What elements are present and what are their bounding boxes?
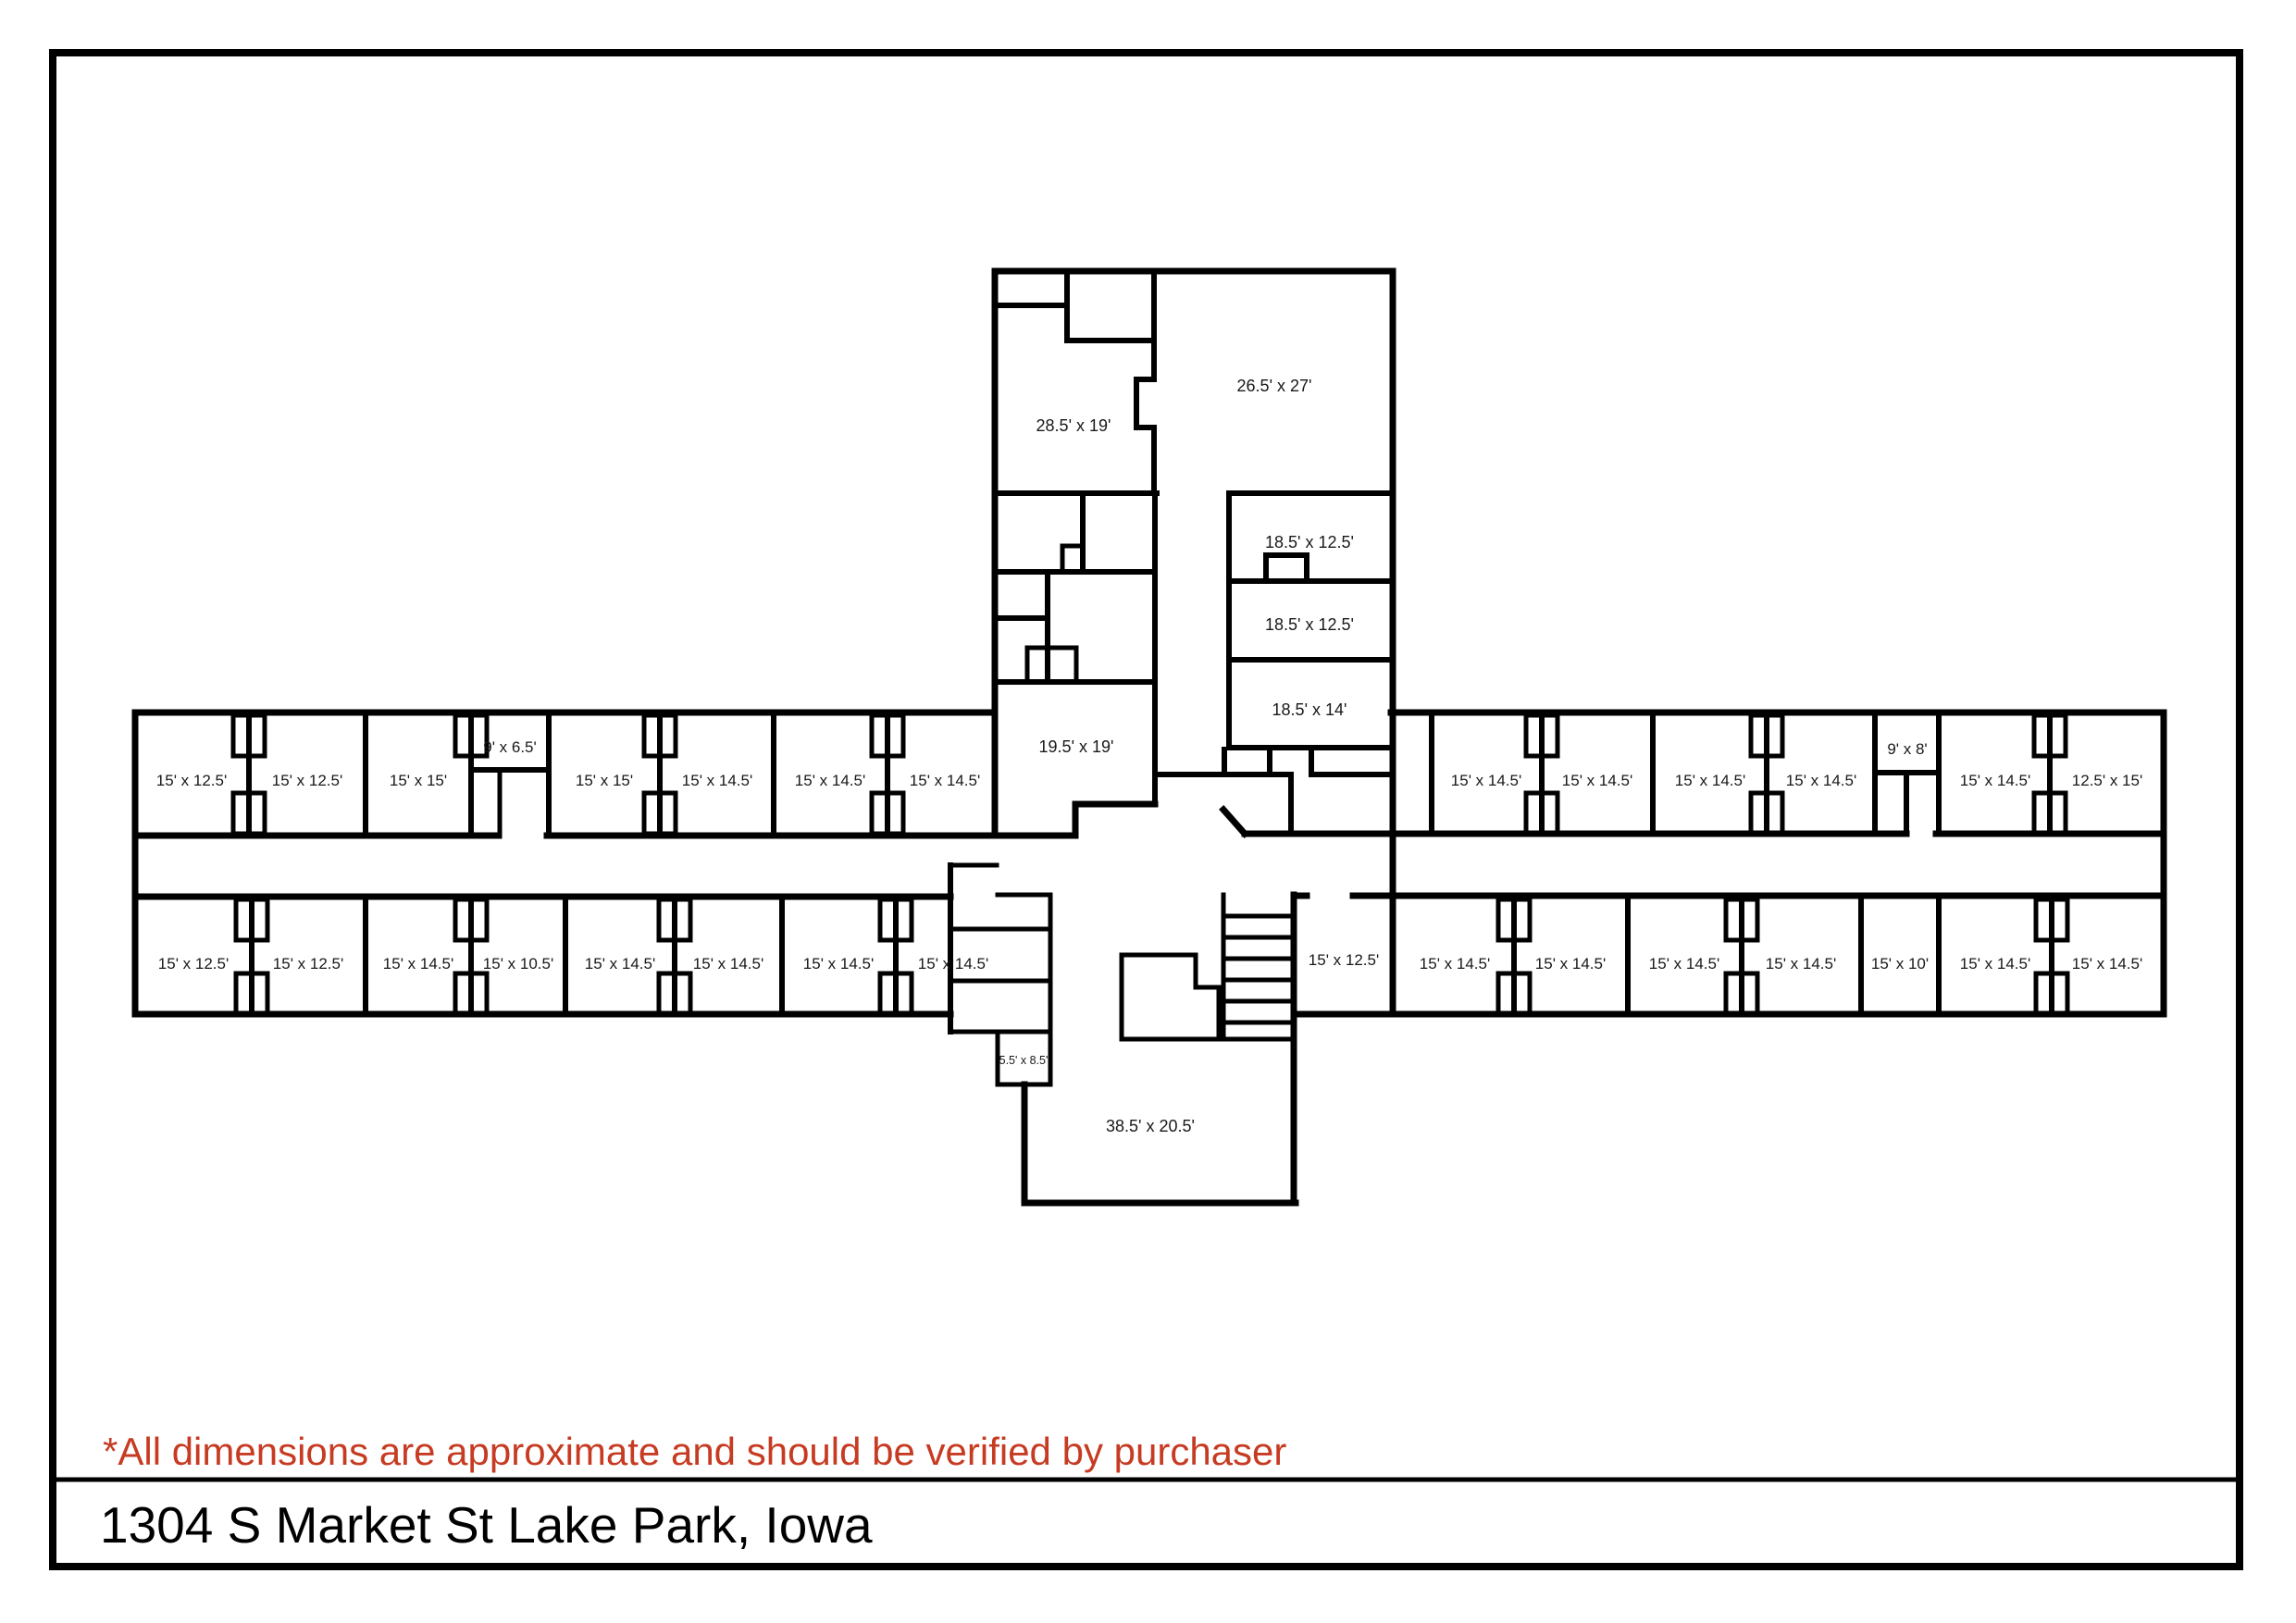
room-dimension-label: 18.5' x 12.5' [1265, 615, 1354, 634]
room-dimension-label: 15' x 10.5' [483, 955, 553, 973]
room-dimension-label: 15' x 12.5' [1309, 951, 1379, 969]
room-dimension-label: 15' x 14.5' [2072, 955, 2142, 973]
interior-walls [249, 271, 2052, 1032]
room-dimension-label: 15' x 12.5' [156, 772, 227, 789]
room-dimension-label: 15' x 12.5' [273, 955, 343, 973]
room-dimension-label: 15' x 15' [390, 772, 447, 789]
room-dimension-label: 15' x 14.5' [1960, 955, 2030, 973]
room-dimension-label: 9' x 8' [1887, 740, 1927, 758]
room-dimension-label: 15' x 14.5' [1766, 955, 1836, 973]
room-dimension-label: 5.5' x 8.5' [999, 1054, 1049, 1067]
room-dimension-label: 15' x 14.5' [803, 955, 874, 973]
floor-plan-svg: 15' x 12.5' 15' x 12.5' 15' x 15' 9' x 6… [0, 0, 2296, 1623]
room-dimension-label: 15' x 10' [1871, 955, 1929, 973]
room-dimension-label: 15' x 14.5' [585, 955, 655, 973]
detail-walls [233, 546, 2067, 1084]
page-border [53, 53, 2240, 1567]
room-dimension-label: 26.5' x 27' [1237, 377, 1312, 395]
room-dimension-label: 28.5' x 19' [1036, 416, 1111, 435]
page-title: 1304 S Market St Lake Park, Iowa [100, 1495, 873, 1555]
room-dimension-label: 12.5' x 15' [2072, 772, 2142, 789]
room-dimension-label: 15' x 14.5' [1420, 955, 1490, 973]
floor-plan-page: 15' x 12.5' 15' x 12.5' 15' x 15' 9' x 6… [0, 0, 2296, 1623]
room-dimension-label: 19.5' x 19' [1039, 737, 1114, 756]
room-dimension-label: 15' x 14.5' [1960, 772, 2030, 789]
room-dimension-label: 15' x 14.5' [693, 955, 763, 973]
room-dimension-label: 9' x 6.5' [483, 738, 537, 756]
room-dimension-label: 15' x 14.5' [1562, 772, 1632, 789]
room-dimension-label: 15' x 14.5' [383, 955, 453, 973]
room-dimension-label: 18.5' x 12.5' [1265, 533, 1354, 551]
room-dimension-label: 18.5' x 14' [1272, 700, 1347, 719]
room-dimension-label: 15' x 14.5' [1649, 955, 1719, 973]
room-dimension-label: 38.5' x 20.5' [1106, 1117, 1195, 1135]
disclaimer-text: *All dimensions are approximate and shou… [103, 1430, 1286, 1474]
room-dimension-label: 15' x 14.5' [1675, 772, 1745, 789]
room-dimension-label: 15' x 14.5' [1451, 772, 1521, 789]
room-dimension-label: 15' x 14.5' [795, 772, 865, 789]
room-dimension-label: 15' x 14.5' [910, 772, 980, 789]
room-dimension-label: 15' x 14.5' [918, 955, 988, 973]
room-dimension-label: 15' x 12.5' [158, 955, 229, 973]
room-dimension-label: 15' x 12.5' [272, 772, 342, 789]
room-dimension-label: 15' x 15' [576, 772, 633, 789]
room-dimension-label: 15' x 14.5' [1535, 955, 1606, 973]
building-outer-walls [135, 271, 2164, 1203]
room-dimension-label: 15' x 14.5' [1786, 772, 1856, 789]
room-dimension-label: 15' x 14.5' [682, 772, 752, 789]
